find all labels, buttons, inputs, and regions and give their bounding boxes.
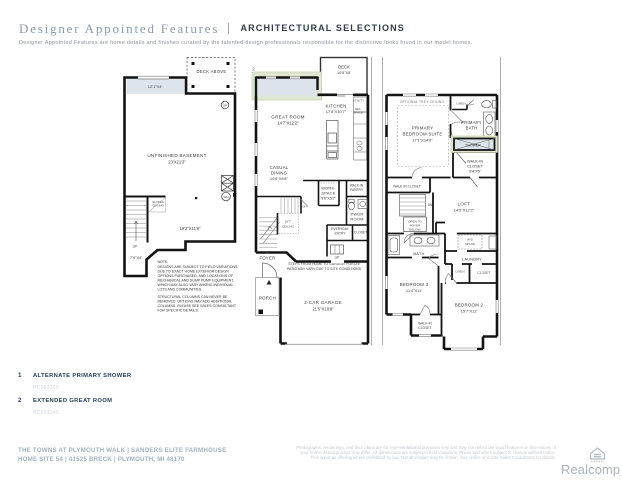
svg-text:5'6"X5'2": 5'6"X5'2" — [321, 197, 336, 201]
svg-text:BATH: BATH — [413, 251, 424, 256]
svg-text:PATIO MAY VARY DUE TO SITE CON: PATIO MAY VARY DUE TO SITE CONDITIONS — [287, 267, 362, 271]
svg-text:SHOWER: SHOWER — [465, 143, 481, 147]
svg-text:23'X21'3": 23'X21'3" — [168, 160, 186, 165]
svg-text:10'5"X8': 10'5"X8' — [337, 70, 351, 75]
svg-text:17'1"X14'6": 17'1"X14'6" — [412, 138, 433, 143]
svg-text:PANTRY: PANTRY — [350, 188, 364, 192]
svg-text:PRIMARY: PRIMARY — [412, 126, 434, 131]
svg-text:BEDROOM SUITE: BEDROOM SUITE — [402, 132, 442, 137]
svg-text:UTILITY: UTILITY — [353, 99, 365, 103]
svg-text:OPTIONS PURCHASED, AND LOCATIO: OPTIONS PURCHASED, AND LOCATIONS OF — [158, 274, 234, 278]
svg-text:FOR SPECIFIC DETAILS.: FOR SPECIFIC DETAILS. — [158, 309, 199, 313]
svg-text:CLOSET: CLOSET — [477, 271, 490, 275]
svg-text:UP: UP — [266, 251, 271, 255]
svg-text:11'4"X11': 11'4"X11' — [406, 288, 422, 293]
svg-text:2-CAR GARAGE: 2-CAR GARAGE — [304, 300, 342, 305]
svg-text:BEDROOM 2: BEDROOM 2 — [455, 303, 484, 308]
svg-text:LAUNDRY: LAUNDRY — [462, 257, 482, 262]
svg-text:15'7"X12': 15'7"X12' — [461, 309, 478, 314]
svg-text:1: 1 — [450, 131, 453, 136]
svg-text:8'4"X5': 8'4"X5' — [469, 170, 481, 174]
svg-text:BEDROOM 3: BEDROOM 3 — [400, 282, 429, 287]
svg-text:SPACE: SPACE — [321, 191, 335, 196]
svg-text:NOTE:: NOTE: — [158, 260, 169, 264]
svg-text:MECHANICAL AND SUMP PUMP EQUIP: MECHANICAL AND SUMP PUMP EQUIPMENT, — [158, 279, 235, 283]
svg-text:DECK: DECK — [338, 65, 350, 70]
svg-text:SPACE: SPACE — [465, 242, 475, 246]
svg-text:WH: WH — [224, 195, 229, 199]
svg-text:UNFINISHED BASEMENT: UNFINISHED BASEMENT — [147, 153, 206, 158]
svg-text:STEPS FROM HOME TO GARAGE/ POR: STEPS FROM HOME TO GARAGE/ PORCH/ — [288, 262, 359, 266]
svg-text:SP: SP — [223, 103, 227, 107]
svg-text:21'5"X18'8": 21'5"X18'8" — [312, 307, 334, 312]
svg-text:2: 2 — [252, 67, 255, 72]
svg-text:DUE TO EXACT HOME EXTERIOR DES: DUE TO EXACT HOME EXTERIOR DESIGN — [158, 270, 230, 274]
svg-text:ENTRY: ENTRY — [334, 232, 346, 236]
svg-text:17'8"X10'7": 17'8"X10'7" — [326, 109, 347, 114]
svg-text:CASUAL: CASUAL — [270, 165, 289, 170]
svg-text:EVERYDAY: EVERYDAY — [331, 227, 349, 231]
svg-text:DN: DN — [302, 205, 306, 209]
svg-text:BATH: BATH — [466, 126, 478, 131]
svg-text:LINEN: LINEN — [456, 102, 465, 106]
svg-text:18'7": 18'7" — [285, 220, 292, 224]
svg-text:GREAT ROOM: GREAT ROOM — [271, 115, 304, 120]
svg-text:CEILING: CEILING — [152, 204, 164, 208]
svg-text:DECK ABOVE: DECK ABOVE — [197, 69, 227, 74]
svg-text:BELOW: BELOW — [409, 228, 420, 232]
svg-text:ROOM: ROOM — [350, 217, 363, 222]
svg-text:UP: UP — [133, 245, 138, 249]
svg-text:LINEN: LINEN — [455, 270, 464, 274]
svg-text:PRIMARY: PRIMARY — [461, 120, 481, 125]
svg-text:PORCH: PORCH — [259, 296, 276, 301]
svg-text:12'1"X4': 12'1"X4' — [148, 84, 163, 89]
svg-text:KITCHEN: KITCHEN — [325, 104, 346, 109]
svg-text:SPACE: SPACE — [353, 111, 363, 115]
svg-text:COLUMNS. PLEASE SEE SALES CONS: COLUMNS. PLEASE SEE SALES CONSULTANT — [158, 304, 237, 308]
svg-text:14'5"X12'2": 14'5"X12'2" — [454, 208, 475, 213]
svg-text:UP: UP — [335, 256, 340, 260]
svg-text:WHICH MAY ALSO VARY AMONG INDI: WHICH MAY ALSO VARY AMONG INDIVIDUAL — [158, 283, 234, 287]
svg-text:14'7"X12'2": 14'7"X12'2" — [277, 121, 299, 126]
svg-text:WALK-IN: WALK-IN — [418, 322, 432, 326]
svg-text:7'9"X4': 7'9"X4' — [130, 255, 143, 260]
svg-text:CEILING: CEILING — [282, 225, 295, 229]
svg-text:DN: DN — [428, 203, 433, 207]
svg-text:DESIGNS ARE SUBJECT TO FIELD V: DESIGNS ARE SUBJECT TO FIELD VARIATIONS — [158, 265, 239, 269]
svg-text:WALK-IN CLOSET: WALK-IN CLOSET — [393, 185, 421, 189]
svg-text:CLOSET: CLOSET — [418, 326, 431, 330]
svg-text:FOYER: FOYER — [259, 256, 275, 261]
svg-text:LOTS AND COMMUNITIES.: LOTS AND COMMUNITIES. — [158, 288, 203, 292]
svg-text:10'6"X8'8": 10'6"X8'8" — [270, 176, 289, 181]
svg-text:LOFT: LOFT — [458, 202, 471, 207]
svg-text:CLOSET: CLOSET — [467, 164, 483, 169]
svg-text:CLOSET: CLOSET — [354, 231, 367, 235]
svg-text:DINING: DINING — [271, 171, 288, 176]
svg-text:REMOVED. OPTIONS MAY ADD ADDIT: REMOVED. OPTIONS MAY ADD ADDITIONAL — [158, 300, 233, 304]
svg-text:STRUCTURAL COLUMNS CAN NEVER B: STRUCTURAL COLUMNS CAN NEVER BE — [158, 295, 228, 299]
svg-text:OPTIONAL TREY CEILING: OPTIONAL TREY CEILING — [400, 100, 445, 104]
svg-text:19'2"X11'8": 19'2"X11'8" — [179, 226, 201, 231]
